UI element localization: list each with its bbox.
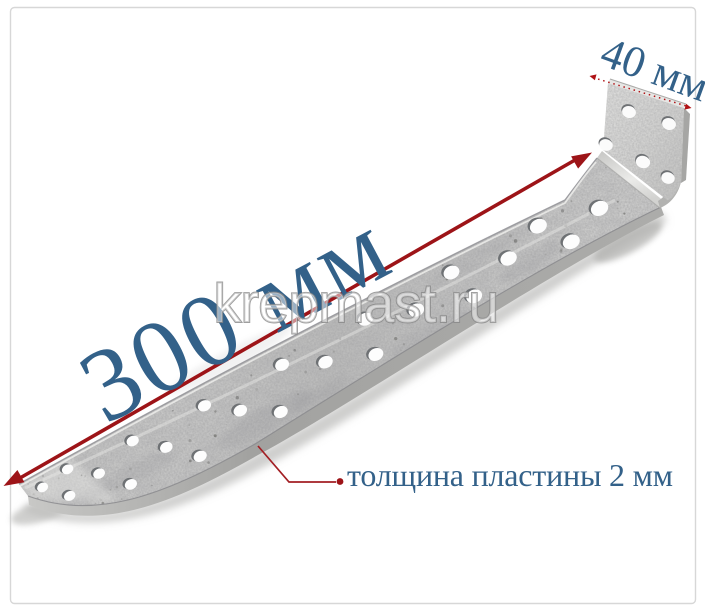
svg-text:krepmast.ru: krepmast.ru [214,272,499,334]
svg-text:толщина пластины 2 мм: толщина пластины 2 мм [347,457,673,493]
